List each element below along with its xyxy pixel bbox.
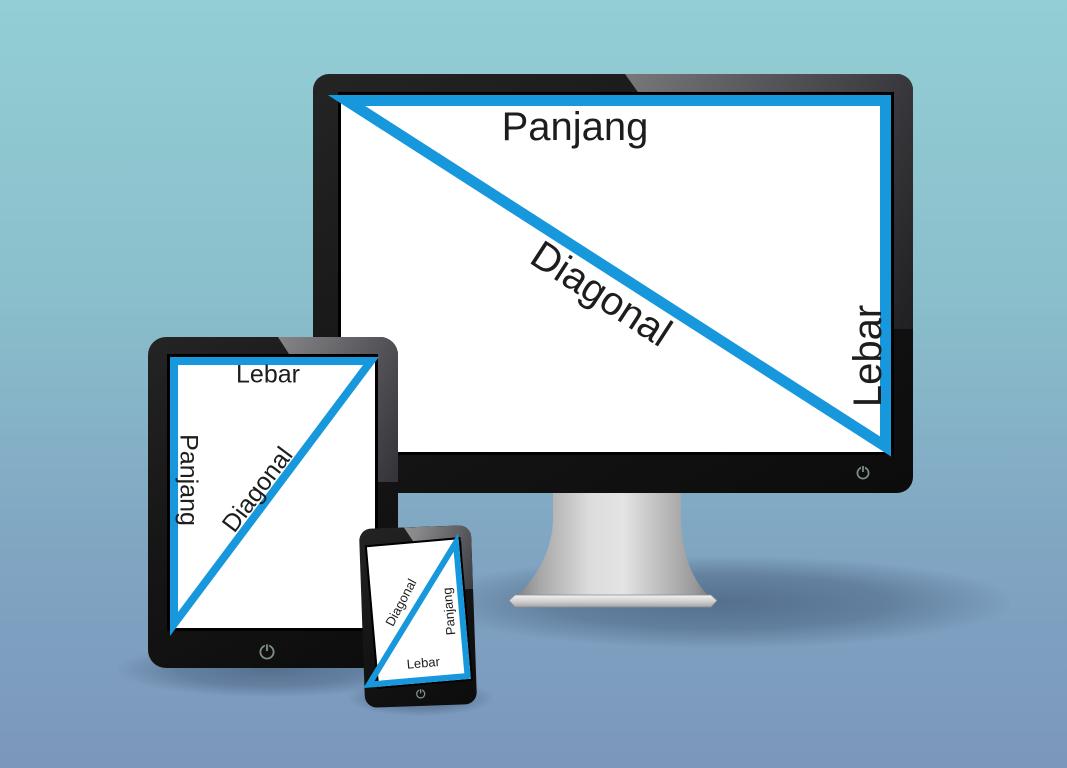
monitor-stand-shape bbox=[505, 492, 721, 610]
phone-screen: Diagonal Panjang Lebar bbox=[367, 539, 471, 686]
power-icon bbox=[257, 642, 277, 662]
tablet-label-length: Panjang bbox=[176, 434, 201, 526]
illustration-scene: Panjang Lebar Diagonal Lebar Panjang Dia… bbox=[0, 0, 1067, 768]
power-icon bbox=[854, 464, 872, 482]
tablet: Lebar Panjang Diagonal bbox=[148, 337, 398, 668]
monitor-screen: Panjang Lebar Diagonal bbox=[341, 95, 891, 452]
monitor-triangle-path bbox=[347, 101, 886, 447]
monitor: Panjang Lebar Diagonal bbox=[313, 74, 913, 493]
monitor-stand bbox=[505, 492, 721, 610]
stand-neck bbox=[517, 492, 709, 596]
tablet-screen: Lebar Panjang Diagonal bbox=[170, 357, 375, 628]
tablet-label-width: Lebar bbox=[236, 363, 300, 388]
stand-base bbox=[509, 595, 717, 607]
phone: Diagonal Panjang Lebar bbox=[359, 525, 477, 708]
monitor-label-width: Lebar bbox=[848, 305, 888, 407]
phone-label-length: Panjang bbox=[440, 587, 457, 636]
phone-label-width: Lebar bbox=[406, 655, 440, 671]
power-icon bbox=[414, 688, 426, 700]
monitor-label-length: Panjang bbox=[502, 107, 649, 147]
